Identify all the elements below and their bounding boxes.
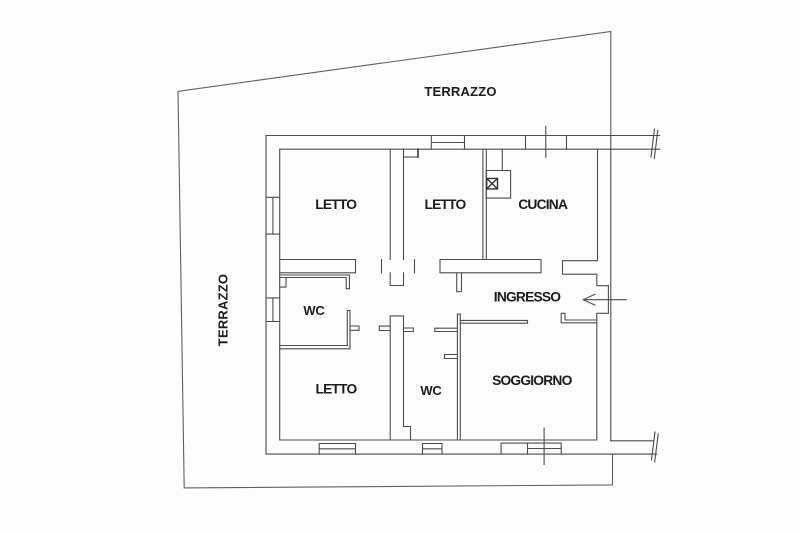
- svg-text:LETTO: LETTO: [315, 197, 357, 212]
- svg-text:TERRAZZO: TERRAZZO: [424, 84, 496, 99]
- svg-text:LETTO: LETTO: [316, 382, 358, 397]
- svg-text:CUCINA: CUCINA: [518, 197, 568, 212]
- svg-text:WC: WC: [303, 303, 325, 318]
- svg-text:WC: WC: [420, 383, 442, 398]
- svg-text:INGRESSO: INGRESSO: [494, 290, 561, 305]
- svg-text:SOGGIORNO: SOGGIORNO: [492, 373, 572, 388]
- svg-text:TERRAZZO: TERRAZZO: [216, 274, 231, 346]
- svg-text:LETTO: LETTO: [425, 197, 467, 212]
